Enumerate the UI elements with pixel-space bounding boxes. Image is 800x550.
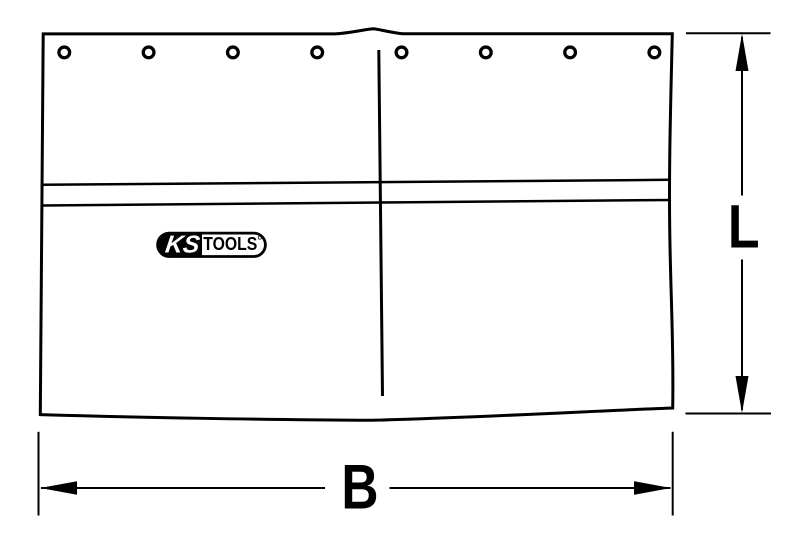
svg-text:L: L — [728, 193, 760, 261]
svg-text:B: B — [341, 453, 378, 523]
svg-text:TOOLS: TOOLS — [203, 233, 257, 254]
svg-text:KS: KS — [164, 232, 202, 259]
